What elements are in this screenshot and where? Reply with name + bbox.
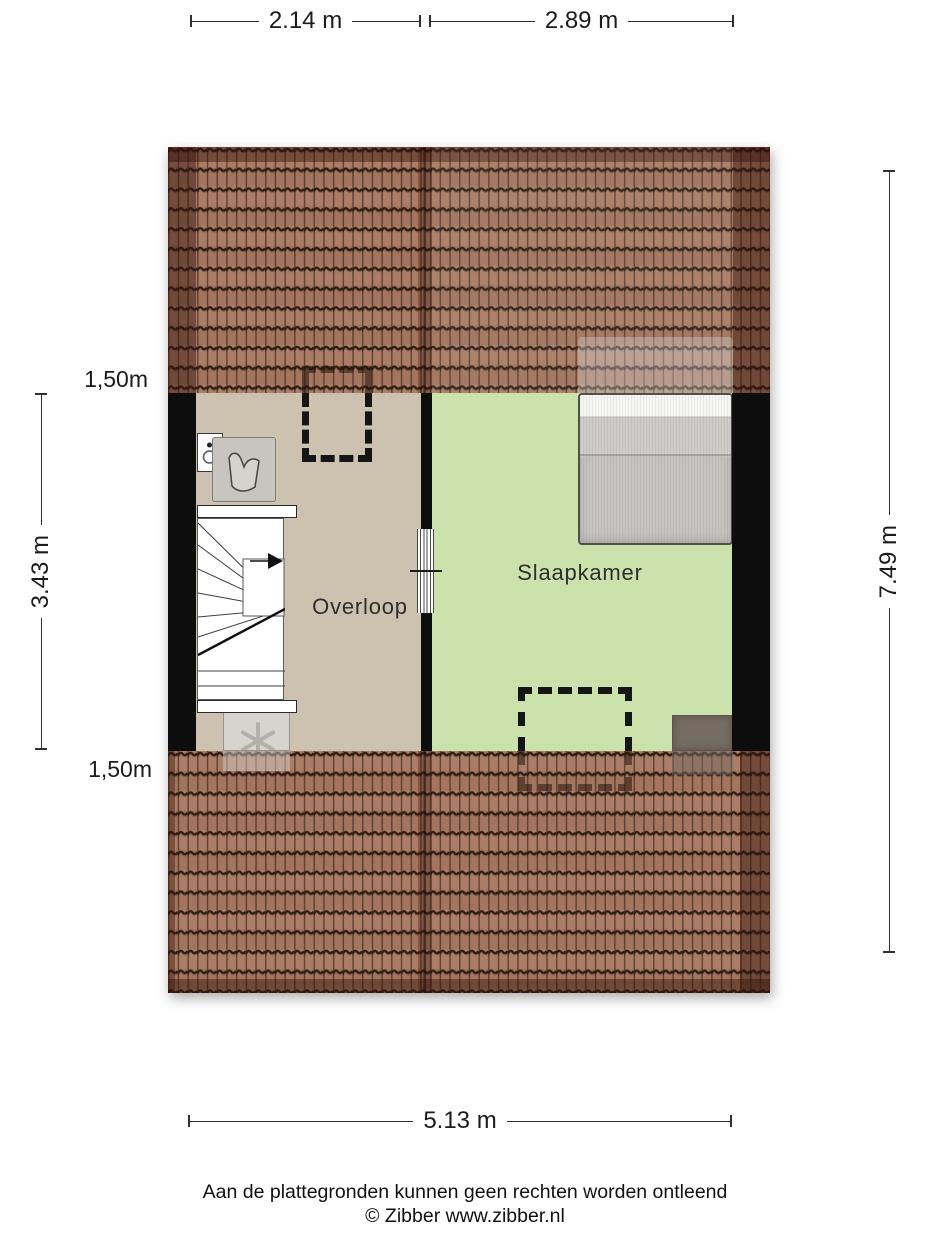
knee-wall-label-bottom: 1,50m [52,756,152,783]
dimension-line [352,21,419,22]
dimension-line [190,1121,413,1122]
roof-window-outline-landing-ghost [302,366,372,394]
chimney-slab-under-roof [672,751,733,775]
dimension-right: 7.49 m [877,170,901,953]
dimension-line [41,395,42,525]
knee-wall-label-top: 1,50m [48,366,148,393]
staircase-treads [198,519,285,701]
staircase [197,518,284,700]
footer-disclaimer: Aan de plattegronden kunnen geen rechten… [0,1181,930,1204]
door-swing-line [410,570,442,572]
dimension-bottom: 5.13 m [188,1105,732,1137]
dimension-tick [730,1115,732,1127]
wall-left [168,393,196,751]
dimension-label: 3.43 m [27,535,55,608]
dimension-tick [419,15,421,27]
dimension-line [431,21,535,22]
room-label-landing: Overloop [312,594,408,620]
roof-window-outline-bedroom-ghost [518,751,632,791]
floorplan-page: 2.14 m 2.89 m 1,50m 1,50m 3.43 m 7.49 m [0,0,930,1240]
roof-window-outline-bedroom [518,687,632,751]
dimension-tick [883,951,895,953]
dimension-line [507,1121,730,1122]
dimension-top-right: 2.89 m [429,6,734,36]
bed [578,393,733,545]
stairs-bottom-cap [197,700,297,713]
dimension-line [41,618,42,748]
fan-icon [224,713,290,751]
stairs-top-cap [197,505,297,518]
wall-divider-lower [421,613,432,751]
footer-copyright: © Zibber www.zibber.nl [0,1205,930,1228]
dimension-label: 5.13 m [423,1107,496,1135]
dimension-line [889,172,890,515]
dimension-line [628,21,732,22]
dimension-line [889,608,890,951]
dimension-label: 2.89 m [545,7,618,35]
dimension-top-left: 2.14 m [190,6,421,36]
dimension-line [192,21,259,22]
chimney-slab [672,715,733,751]
ventilation-unit [223,712,290,751]
roof-bottom [168,751,770,993]
dimension-label: 2.14 m [269,7,342,35]
laundry-appliance [212,437,276,502]
dimension-tick [732,15,734,27]
dimension-left: 3.43 m [29,393,53,750]
dimension-label: 7.49 m [875,525,903,598]
bed-headboard-under-roof [578,337,733,393]
dimension-tick [35,748,47,750]
ventilation-unit-under-roof [223,751,290,771]
roof-window-outline-landing [302,393,372,462]
wall-divider-upper [421,393,432,529]
room-label-bedroom: Slaapkamer [517,560,642,586]
floorplan-graphic: Overloop Slaapkamer [168,147,770,993]
wall-right [732,393,770,751]
bed-texture [580,395,731,543]
appliance-icon [213,438,275,501]
